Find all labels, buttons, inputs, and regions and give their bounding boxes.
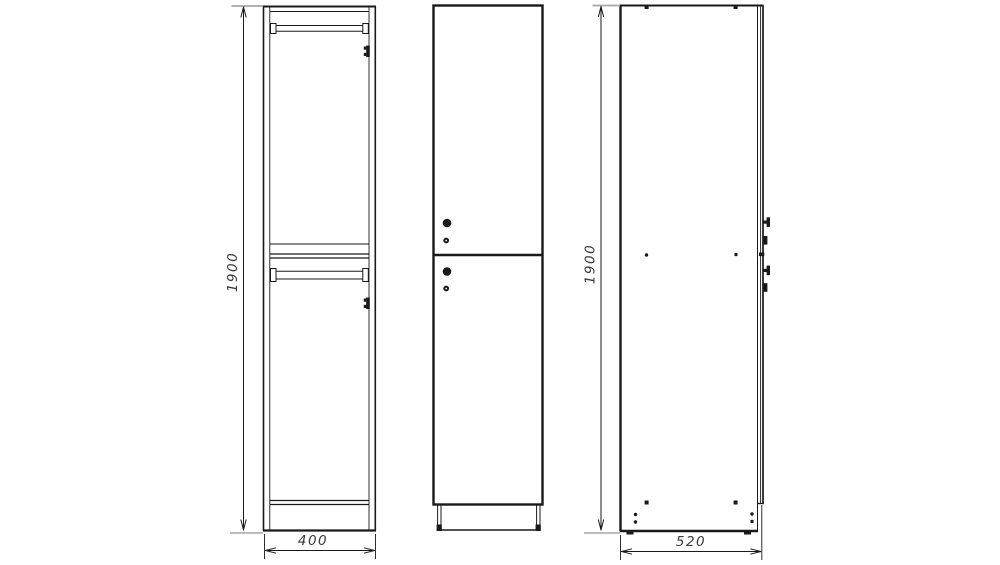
dimension-value-depth: 520 (676, 534, 706, 550)
dimension-depth-side: 520 (621, 505, 762, 560)
screw-mark-top-right (734, 5, 738, 9)
foot-left (437, 525, 442, 532)
technical-drawing-canvas: 1900 400 1900 520 (0, 0, 1000, 565)
knob-stem (764, 221, 767, 224)
dowel-mark-mid-left (645, 253, 648, 256)
screw-mark-top-left (645, 5, 649, 9)
dimension-value-width: 400 (298, 533, 328, 549)
lock-lower-side (763, 283, 768, 292)
rail-bracket-left (271, 24, 277, 34)
middle-shelf (270, 244, 369, 258)
hinge-nub-bottom (364, 305, 367, 308)
knob-cap (767, 217, 770, 227)
dimension-value-height-side: 1900 (583, 244, 599, 284)
dowel-mark-mid-right (734, 253, 737, 256)
hinge-body (366, 46, 370, 58)
door-side-profile (758, 6, 765, 504)
hinge-nub-top (364, 299, 367, 302)
dimension-value-height-front: 1900 (225, 252, 241, 292)
knob-handle-lower (443, 267, 452, 276)
side-view (620, 5, 771, 535)
rail-bracket-right (363, 24, 369, 34)
door-split-mark (759, 253, 764, 257)
knob-stem (764, 269, 767, 272)
rail-bracket-right (363, 269, 369, 282)
knob-cap (767, 266, 770, 276)
hinge-mark-lower (364, 298, 370, 310)
dimension-height-side: 1900 (583, 6, 621, 534)
rail-bracket-left (271, 269, 277, 282)
plinth-base (437, 505, 541, 531)
hinge-nub-bottom (364, 53, 367, 56)
hinge-nub-top (364, 47, 367, 50)
dowel-mark-base-right-2 (750, 520, 753, 523)
front-view-doors (434, 6, 543, 532)
dowel-mark-base-left-1 (634, 513, 637, 516)
foot-right (536, 525, 541, 532)
dowel-mark-base-left-2 (634, 520, 637, 523)
dowel-mark-base-right-1 (750, 512, 753, 515)
hanger-rail-middle (271, 269, 369, 282)
lock-keyhole-lower (445, 288, 447, 290)
knob-handle-lower-side (764, 266, 771, 276)
dimension-height-front: 1900 (225, 6, 263, 533)
screw-mark-bottom-left (645, 501, 649, 505)
bottom-shelf (270, 501, 369, 505)
hinge-mark-upper (364, 46, 370, 58)
front-view-open (263, 6, 376, 531)
dimension-width-front: 400 (265, 533, 376, 559)
locker-drawing: 1900 400 1900 520 (0, 0, 1000, 565)
hinge-body (366, 298, 370, 310)
knob-handle-upper (443, 219, 452, 228)
lock-keyhole-upper (445, 240, 447, 242)
foot-right (744, 532, 751, 535)
foot-left (627, 532, 634, 535)
hanger-rail-top (271, 24, 369, 34)
knob-handle-upper-side (764, 217, 771, 227)
screw-mark-bottom-right (734, 501, 738, 505)
lock-upper-side (763, 236, 768, 245)
